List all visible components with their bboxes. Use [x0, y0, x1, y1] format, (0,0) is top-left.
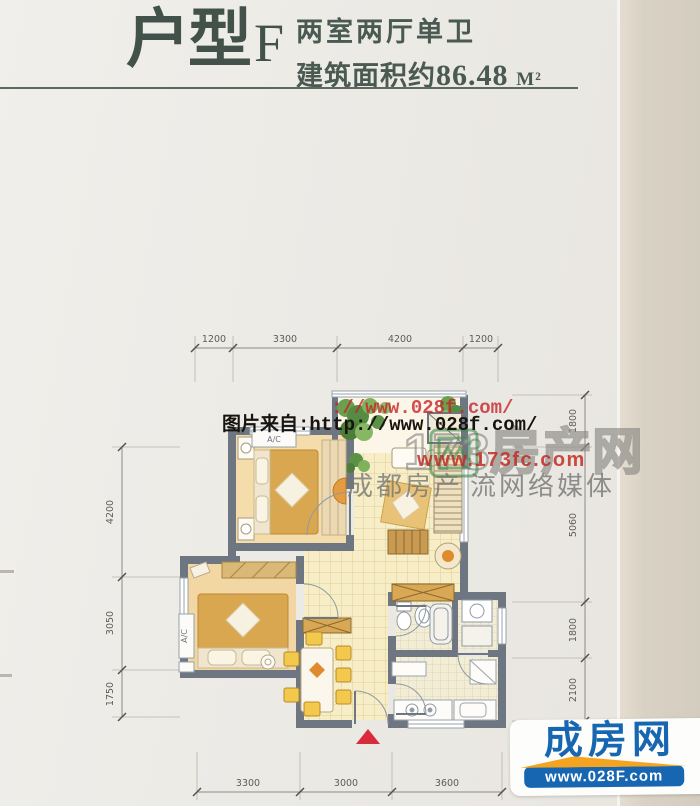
dim-left-1: 4200 [105, 500, 116, 524]
pillow [256, 458, 268, 484]
dim-top-4: 1200 [469, 334, 493, 345]
dim-right-3: 1800 [568, 618, 579, 642]
ac-label: A/C [180, 629, 189, 643]
pillow [256, 496, 268, 522]
scanned-floorplan-page: 户型 F 两室两厅单卫 建筑面积约86.48 M² [0, 0, 700, 806]
site-logo: 成房网 www.028F.com [510, 718, 700, 796]
site-logo-url: www.028F.com [524, 765, 684, 788]
dim-right-2: 5060 [568, 513, 579, 537]
ac-label: A/C [267, 435, 281, 444]
bedroom2-furniture [238, 437, 346, 540]
portal-emblem-icon [428, 424, 480, 482]
washer [462, 600, 492, 622]
dim-top-1: 1200 [202, 334, 226, 345]
dim-top-2: 3300 [273, 334, 297, 345]
tv-cabinet [388, 530, 428, 554]
floorplan-drawing: A/C A/C [0, 0, 700, 806]
dim-bottom-1: 3300 [236, 778, 260, 789]
pillow [208, 650, 236, 665]
dim-right-1: 1800 [568, 409, 579, 433]
dim-left-2: 3050 [105, 611, 116, 635]
dim-left-3: 1750 [105, 682, 116, 706]
dim-bottom-3: 3600 [435, 778, 459, 789]
sofa [392, 448, 426, 468]
shower [430, 604, 452, 644]
ac-unit-left: A/C [179, 614, 194, 672]
bath-cabinet [462, 626, 492, 646]
ac-unit-top: A/C [252, 430, 296, 447]
corridor-floor [354, 543, 388, 592]
counter [392, 662, 426, 676]
entrance-arrow [356, 729, 380, 744]
stool [261, 655, 275, 669]
dim-top-3: 4200 [388, 334, 412, 345]
coffee-table [381, 480, 432, 529]
dim-right-4: 2100 [568, 678, 579, 702]
site-logo-brand: 成房网 [510, 719, 700, 763]
counter [394, 700, 452, 720]
toilet [397, 612, 411, 630]
dim-bottom-2: 3000 [334, 778, 358, 789]
